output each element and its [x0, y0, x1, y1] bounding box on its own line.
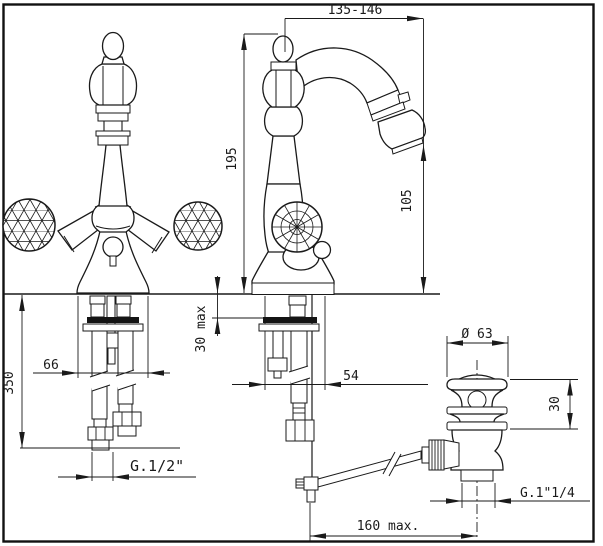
dim-outlet-height: 105 [400, 19, 426, 294]
dim-label-waste-thread: G.1"1/4 [520, 486, 575, 501]
front-view [1, 33, 225, 294]
dim-base-depth: 54 [232, 369, 428, 387]
popup-lever-rod [318, 451, 421, 487]
dim-label-outlet-height: 105 [400, 189, 415, 212]
dim-label-supply-thread: G.1/2" [130, 457, 184, 475]
crystal-handle-right [172, 200, 225, 253]
dim-label-waste-flange-diameter: Ø 63 [461, 327, 492, 342]
dim-label-total-height: 195 [225, 147, 240, 170]
technical-drawing-canvas: 135-146 105 195 30 max [0, 0, 603, 546]
popup-waste-detail [422, 360, 507, 537]
dim-label-spout-reach: 135-146 [328, 3, 383, 18]
finial-front [103, 33, 124, 60]
dim-rod-max-reach: 160 max. [310, 503, 477, 541]
drawing-sheet: 135-146 105 195 30 max [0, 0, 603, 546]
lever-pivot-joint [422, 447, 429, 463]
crystal-handle-side [272, 202, 322, 252]
dim-supply-thread: G.1/2" [58, 457, 196, 480]
dim-label-hose-length: 350 [2, 371, 17, 394]
rod-clamp-block [304, 477, 318, 490]
dim-label-rod-max-reach: 160 max. [357, 519, 420, 534]
dim-label-base-depth: 54 [343, 369, 359, 384]
finial-side [273, 36, 293, 62]
side-view [252, 36, 425, 295]
front-view-underdeck [78, 296, 148, 481]
dim-label-max-deck-thickness: 30 max [194, 305, 209, 352]
dim-waste-top-height: 30 [510, 380, 578, 430]
drain-tailpiece [461, 470, 493, 481]
dim-waste-thread: G.1"1/4 [430, 483, 590, 508]
dim-waste-flange-diameter: Ø 63 [447, 327, 508, 377]
dim-label-base-width: 66 [43, 358, 59, 373]
lift-ring-front [103, 237, 123, 257]
spout [296, 48, 398, 103]
dim-spout-reach: 135-146 [285, 3, 423, 52]
crystal-handle-left [1, 197, 58, 254]
dim-label-waste-top-height: 30 [548, 396, 563, 412]
